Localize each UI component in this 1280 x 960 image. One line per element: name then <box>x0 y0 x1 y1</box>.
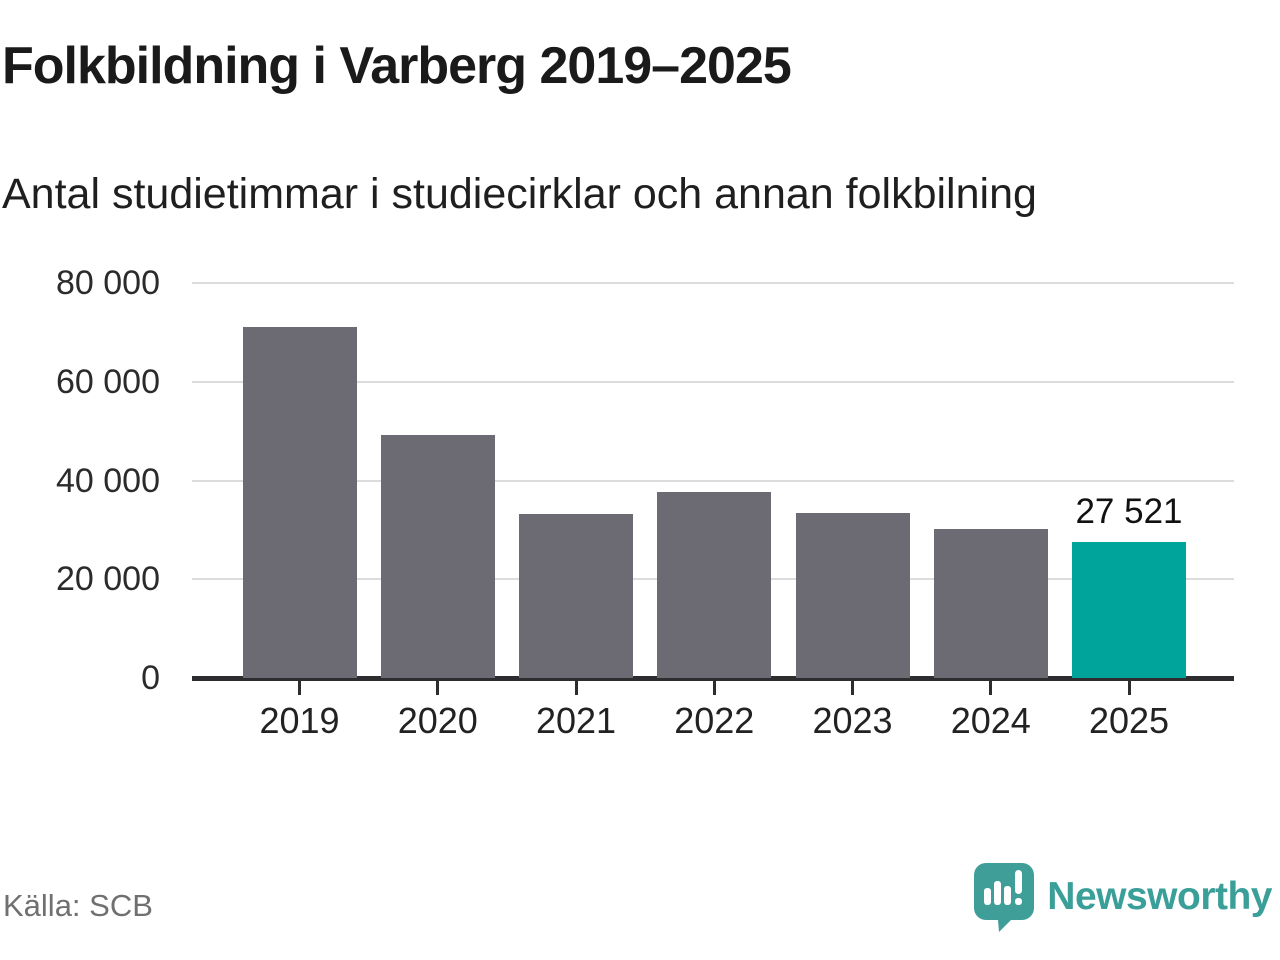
x-tick-label-2021: 2021 <box>506 700 646 742</box>
brand-logo: Newsworthy <box>973 862 1272 932</box>
y-tick-label: 20 000 <box>0 560 160 599</box>
y-tick-label: 80 000 <box>0 264 160 303</box>
bar-2023 <box>796 513 910 678</box>
brand-wordmark: Newsworthy <box>1047 875 1272 919</box>
bar-2019 <box>243 327 357 678</box>
bar-2021 <box>519 514 633 678</box>
x-tick-label-2025: 2025 <box>1059 700 1199 742</box>
chart-subtitle: Antal studietimmar i studiecirklar och a… <box>2 170 1037 219</box>
x-tick-2021 <box>575 681 578 695</box>
y-tick-label: 0 <box>0 659 160 698</box>
newsworthy-bar-chart-graphic: Folkbildning i Varberg 2019–2025 Antal s… <box>0 0 1280 960</box>
x-tick-label-2023: 2023 <box>783 700 923 742</box>
y-tick-label: 60 000 <box>0 363 160 402</box>
bar-value-annotation: 27 521 <box>1039 492 1219 532</box>
x-tick-2025 <box>1128 681 1131 695</box>
bar-2022 <box>657 492 771 678</box>
x-tick-2020 <box>436 681 439 695</box>
chart-title: Folkbildning i Varberg 2019–2025 <box>2 36 791 96</box>
bar-2024 <box>934 529 1048 678</box>
x-tick-2022 <box>713 681 716 695</box>
x-tick-label-2022: 2022 <box>644 700 784 742</box>
gridline-80000 <box>192 282 1234 284</box>
bar-2025 <box>1072 542 1186 678</box>
x-tick-2024 <box>989 681 992 695</box>
bar-2020 <box>381 435 495 678</box>
x-tick-label-2019: 2019 <box>230 700 370 742</box>
x-tick-label-2024: 2024 <box>921 700 1061 742</box>
x-tick-2019 <box>298 681 301 695</box>
x-tick-label-2020: 2020 <box>368 700 508 742</box>
newsworthy-speech-bubble-barchart-icon <box>973 862 1035 932</box>
y-tick-label: 40 000 <box>0 462 160 501</box>
x-tick-2023 <box>851 681 854 695</box>
source-label: Källa: SCB <box>3 888 153 924</box>
